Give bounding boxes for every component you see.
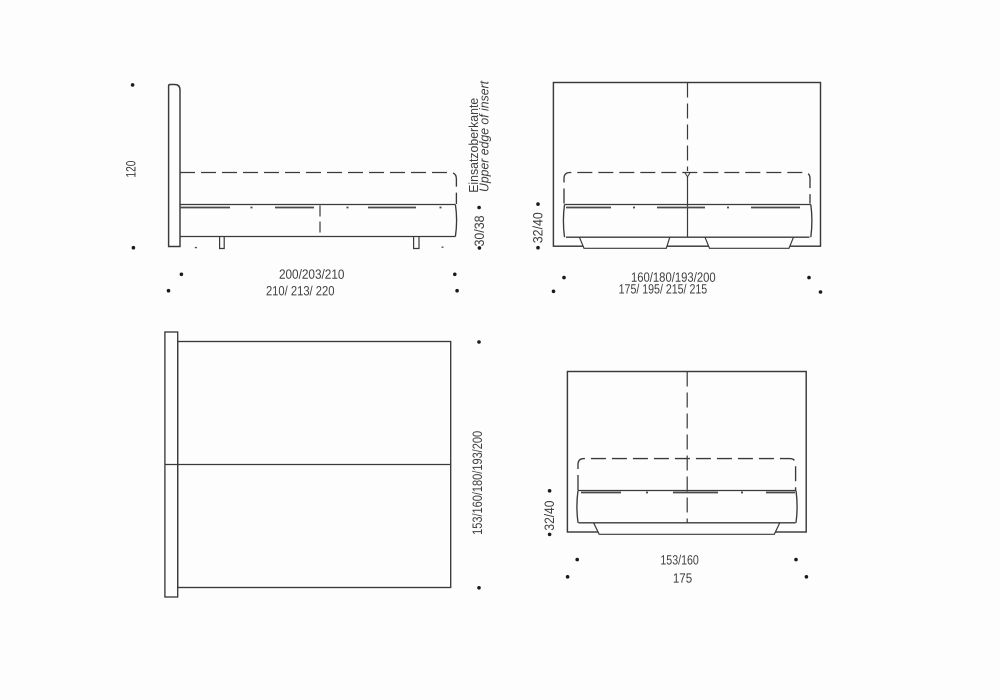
svg-text:32/40: 32/40 — [530, 212, 546, 243]
svg-text:120: 120 — [123, 160, 139, 177]
svg-text:32/40: 32/40 — [541, 500, 557, 530]
svg-text:153/160/180/193/200: 153/160/180/193/200 — [469, 431, 485, 535]
svg-text:200/203/210: 200/203/210 — [279, 267, 345, 282]
svg-text:153/160: 153/160 — [660, 552, 699, 567]
svg-text:Upper edge of insert: Upper edge of insert — [477, 80, 492, 192]
svg-text:30/38: 30/38 — [471, 215, 487, 246]
svg-text:210/ 213/ 220: 210/ 213/ 220 — [266, 283, 335, 298]
svg-text:175/ 195/ 215/ 215: 175/ 195/ 215/ 215 — [619, 281, 708, 296]
svg-text:175: 175 — [673, 571, 692, 586]
